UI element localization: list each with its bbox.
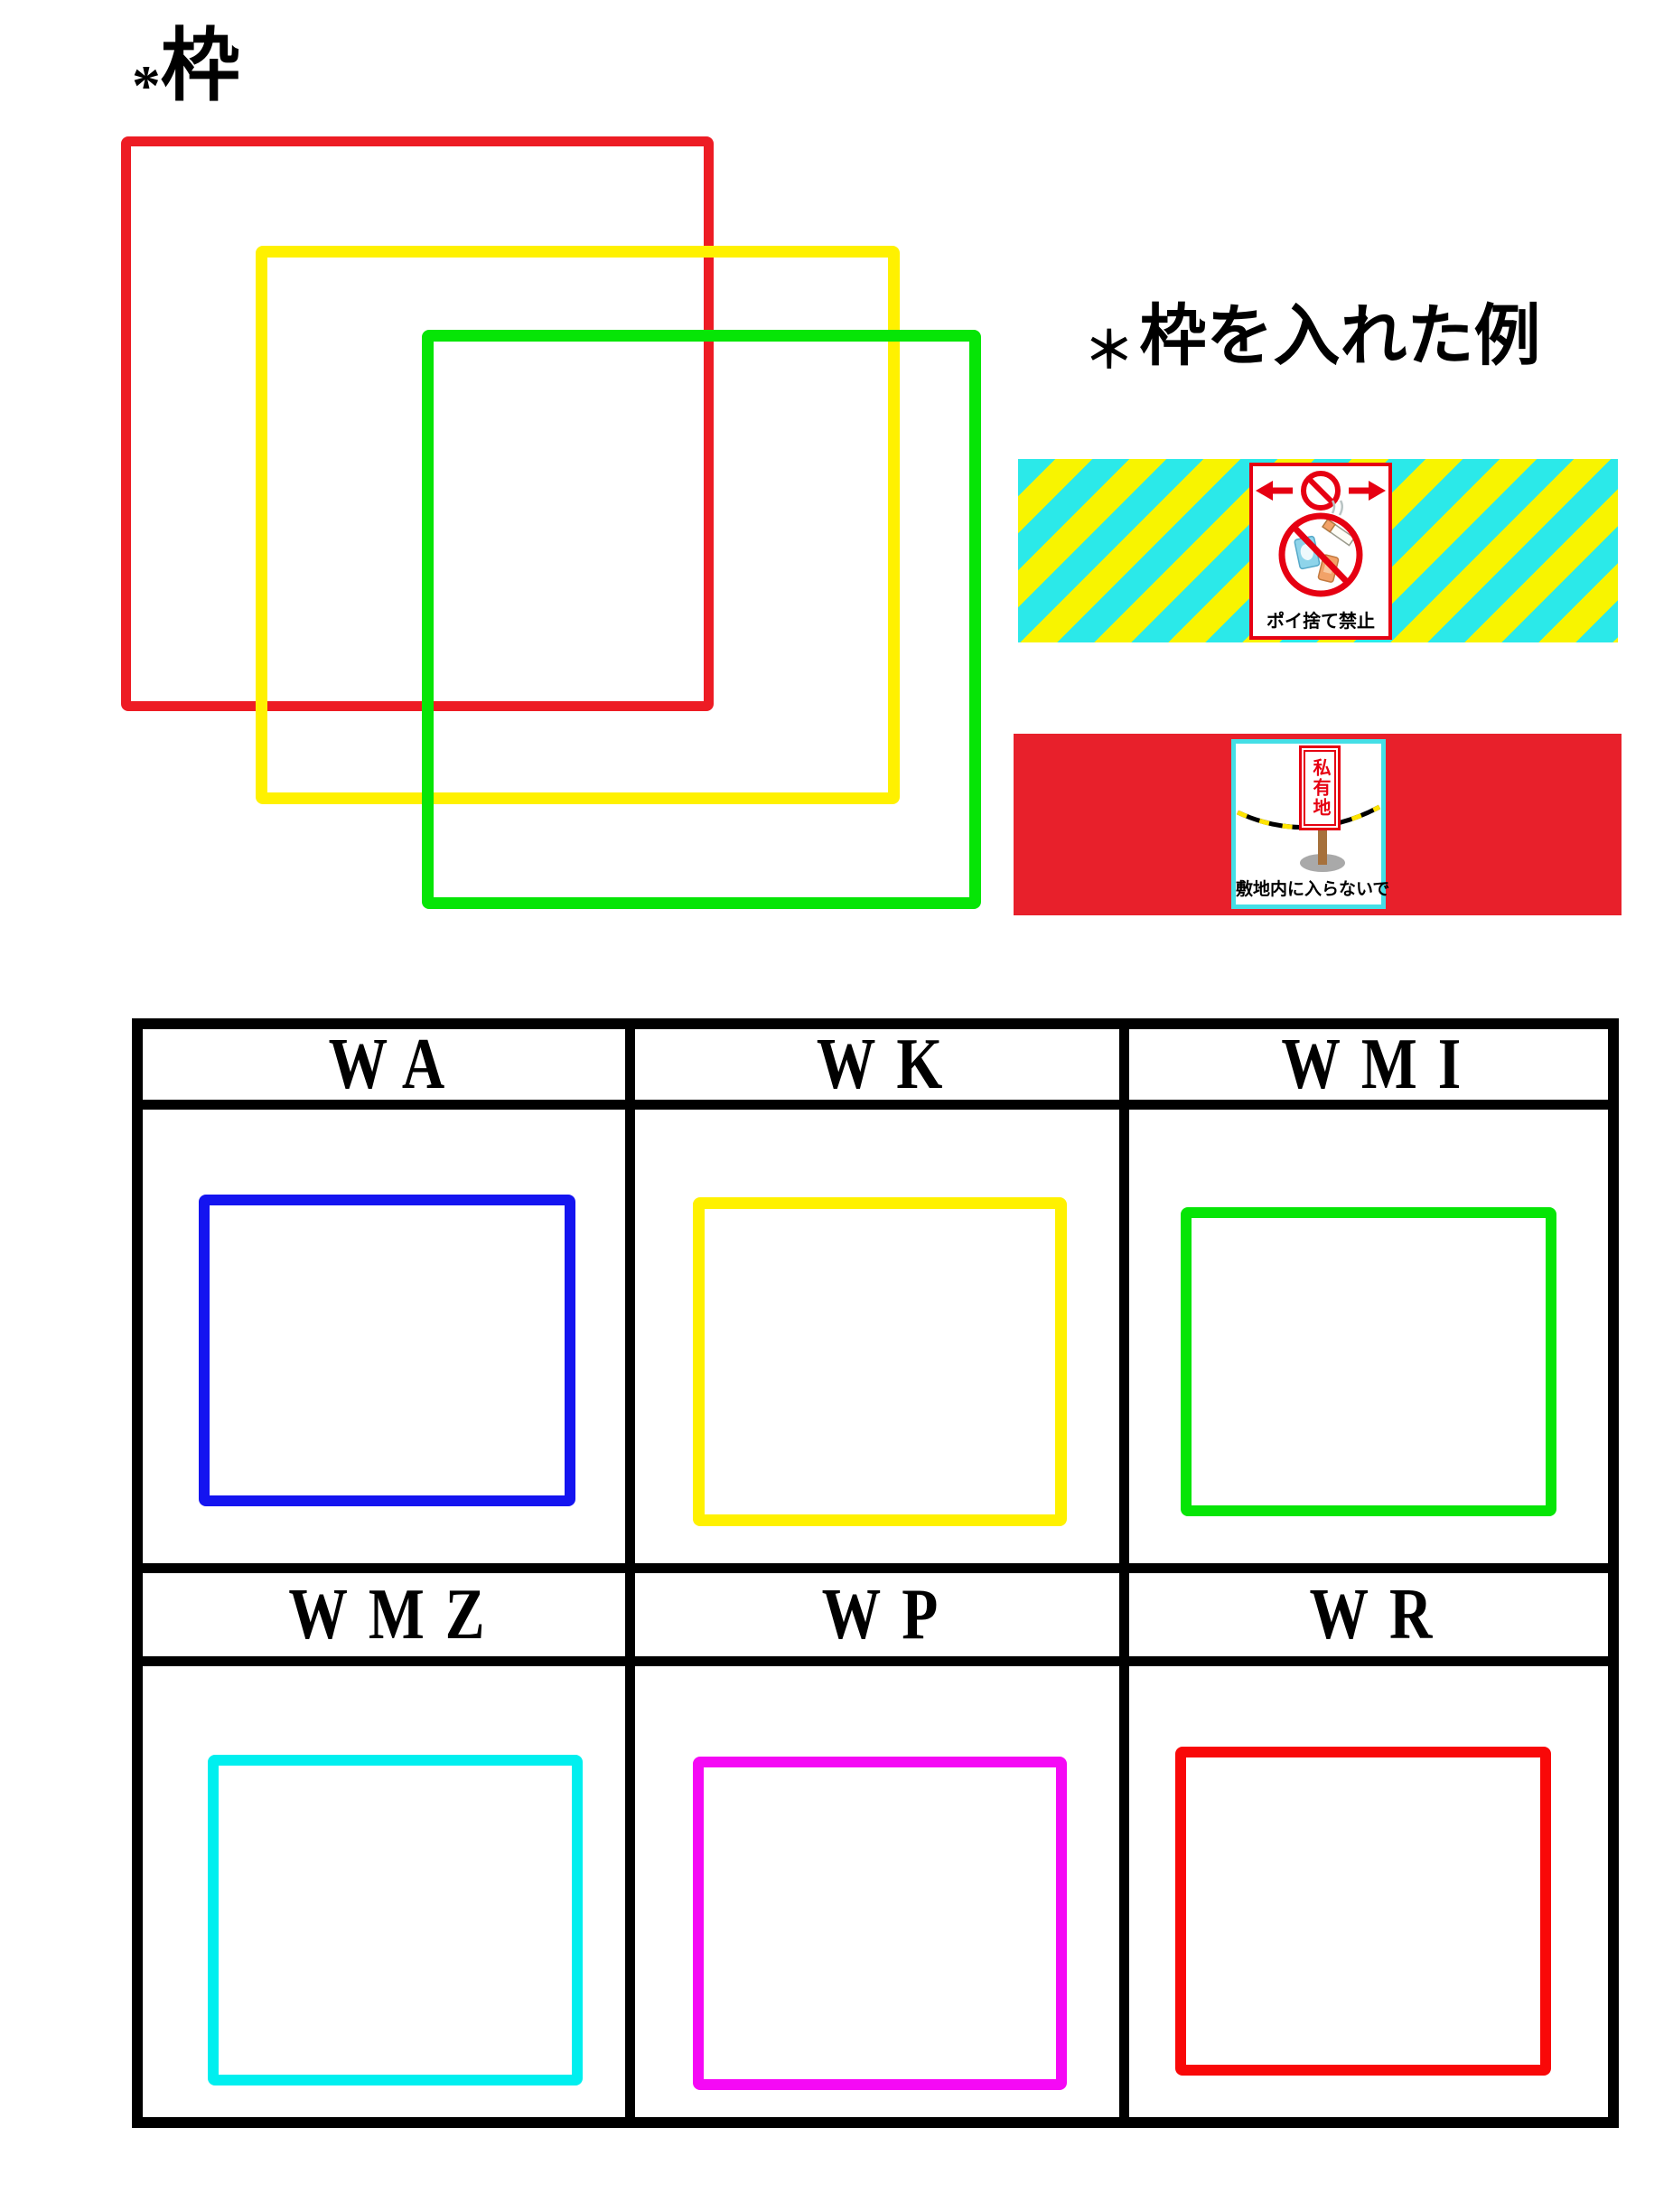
wa-blue-frame [199,1195,575,1506]
wr-red-frame [1175,1747,1551,2076]
no-littering-sign: ポイ捨て禁止 [1249,463,1392,640]
table-cell-wmi [1129,1110,1608,1563]
table-header-wk-label: WK [817,1024,964,1106]
wk-yellow-frame [693,1197,1067,1526]
table-header-wp-label: WP [821,1574,958,1656]
table-header-wmz: WMZ [143,1573,625,1656]
wmi-green-frame [1181,1207,1556,1516]
private-plate: 私有地 [1299,745,1341,830]
arrows-no-entry-icon [1256,473,1386,508]
litter-banner: ポイ捨て禁止 [1018,459,1618,642]
table-cell-wmz [143,1666,625,2117]
table-header-wp: WP [635,1573,1119,1656]
table-header-wa-label: WA [328,1024,465,1106]
private-plate-border: 私有地 [1304,750,1336,826]
private-land-sign: 私有地 敷地内に入らないで [1231,739,1386,909]
private-plate-text: 私有地 [1311,758,1329,818]
table-header-wr: WR [1129,1573,1608,1656]
wmz-cyan-frame [208,1755,583,2085]
private-banner: 私有地 敷地内に入らないで [1014,734,1622,915]
table-header-wa: WA [143,1029,625,1100]
green-frame [422,330,981,909]
private-caption: 敷地内に入らないで [1236,876,1381,900]
table-cell-wp [635,1666,1119,2117]
table-header-wk: WK [635,1029,1119,1100]
table-cell-wa [143,1110,625,1563]
worksheet-page: *枠 ＊枠を入れた例 [0,0,1673,2212]
example-label-text: 枠を入れた例 [1140,300,1541,374]
table-header-wmi-label: WMI [1281,1024,1481,1106]
title-text: 枠 [161,23,240,111]
table-header-wmz-label: WMZ [288,1574,505,1656]
table-header-wr-label: WR [1310,1574,1453,1656]
title-asterisk: * [132,53,161,119]
page-title: *枠 [132,2,240,117]
table-header-wmi: WMI [1129,1029,1608,1100]
example-asterisk: ＊ [1084,310,1135,382]
table-cell-wk [635,1110,1119,1563]
litter-caption: ポイ捨て禁止 [1253,606,1388,633]
litter-prohibition-icon [1282,501,1360,594]
frame-table: WA WK WMI WMZ WP WR [132,1018,1619,2128]
table-cell-wr [1129,1666,1608,2117]
wp-magenta-frame [693,1757,1067,2090]
example-label: ＊枠を入れた例 [1084,282,1541,379]
no-littering-icon [1253,466,1388,602]
